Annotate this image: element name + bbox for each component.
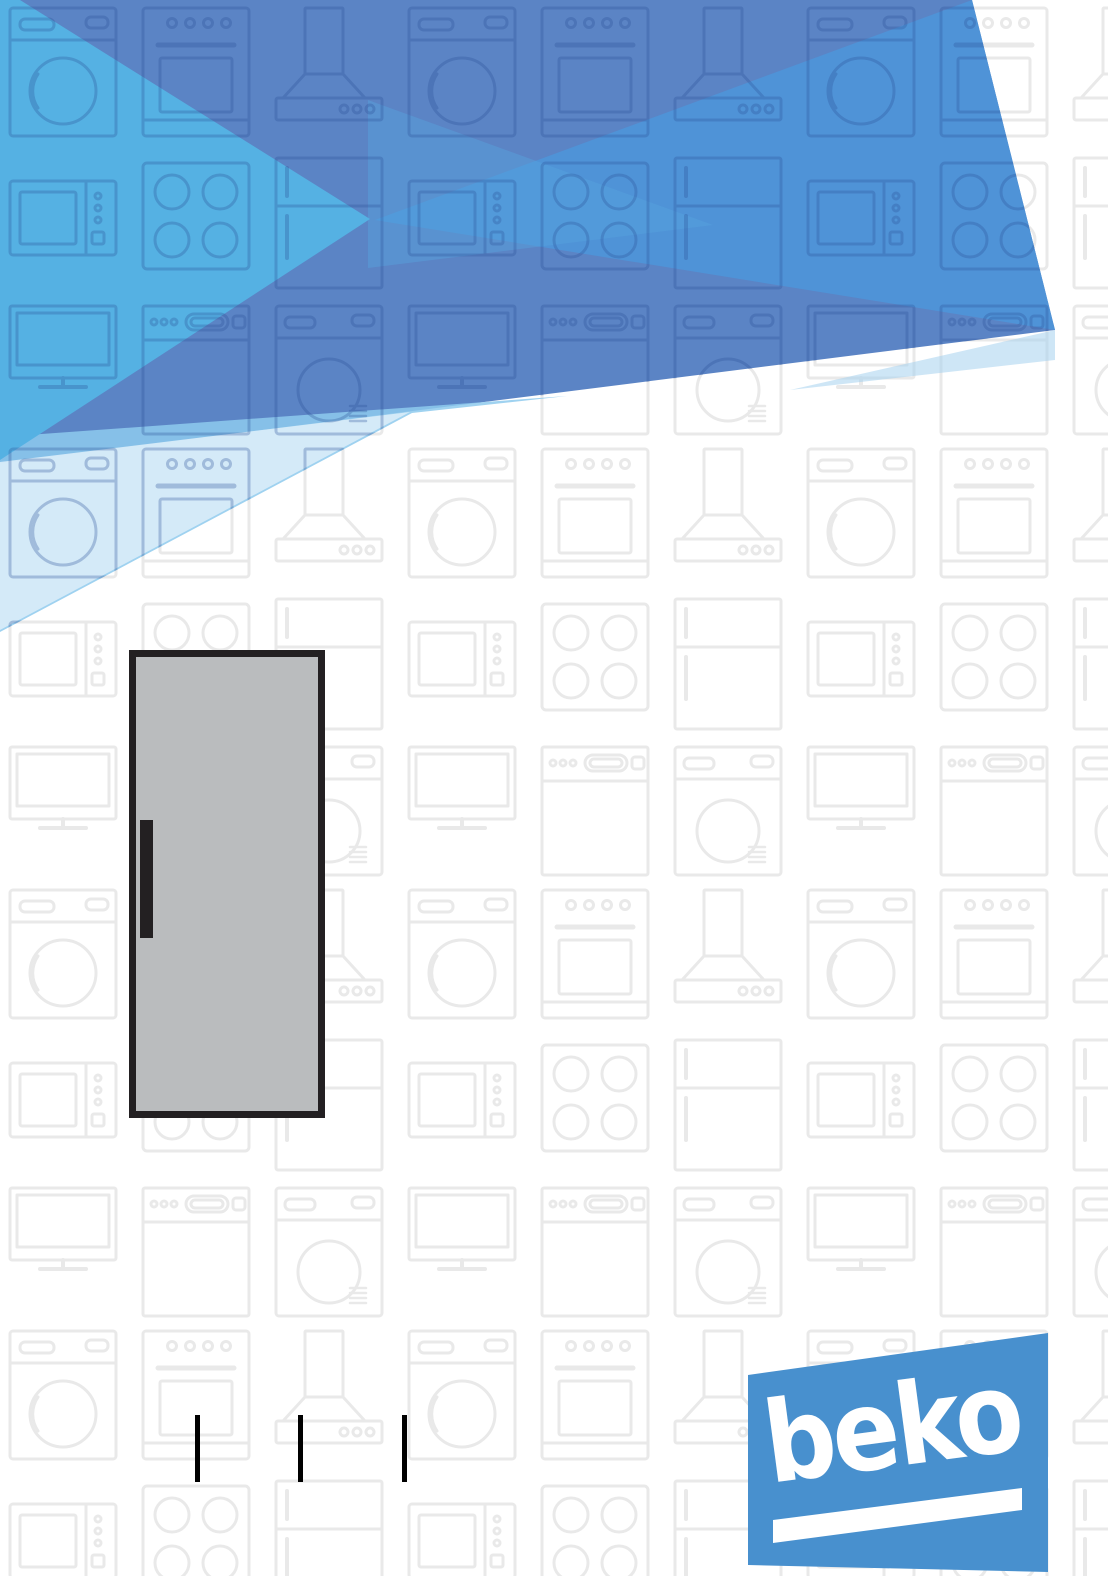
- separator-bar: [298, 1415, 303, 1482]
- refrigerator-illustration: [129, 650, 325, 1118]
- separator-bar: [402, 1415, 407, 1482]
- manual-cover-page: beko: [0, 0, 1108, 1576]
- separator-bar: [195, 1415, 200, 1482]
- refrigerator-door-handle: [140, 820, 153, 938]
- beko-logo: beko: [744, 1327, 1056, 1576]
